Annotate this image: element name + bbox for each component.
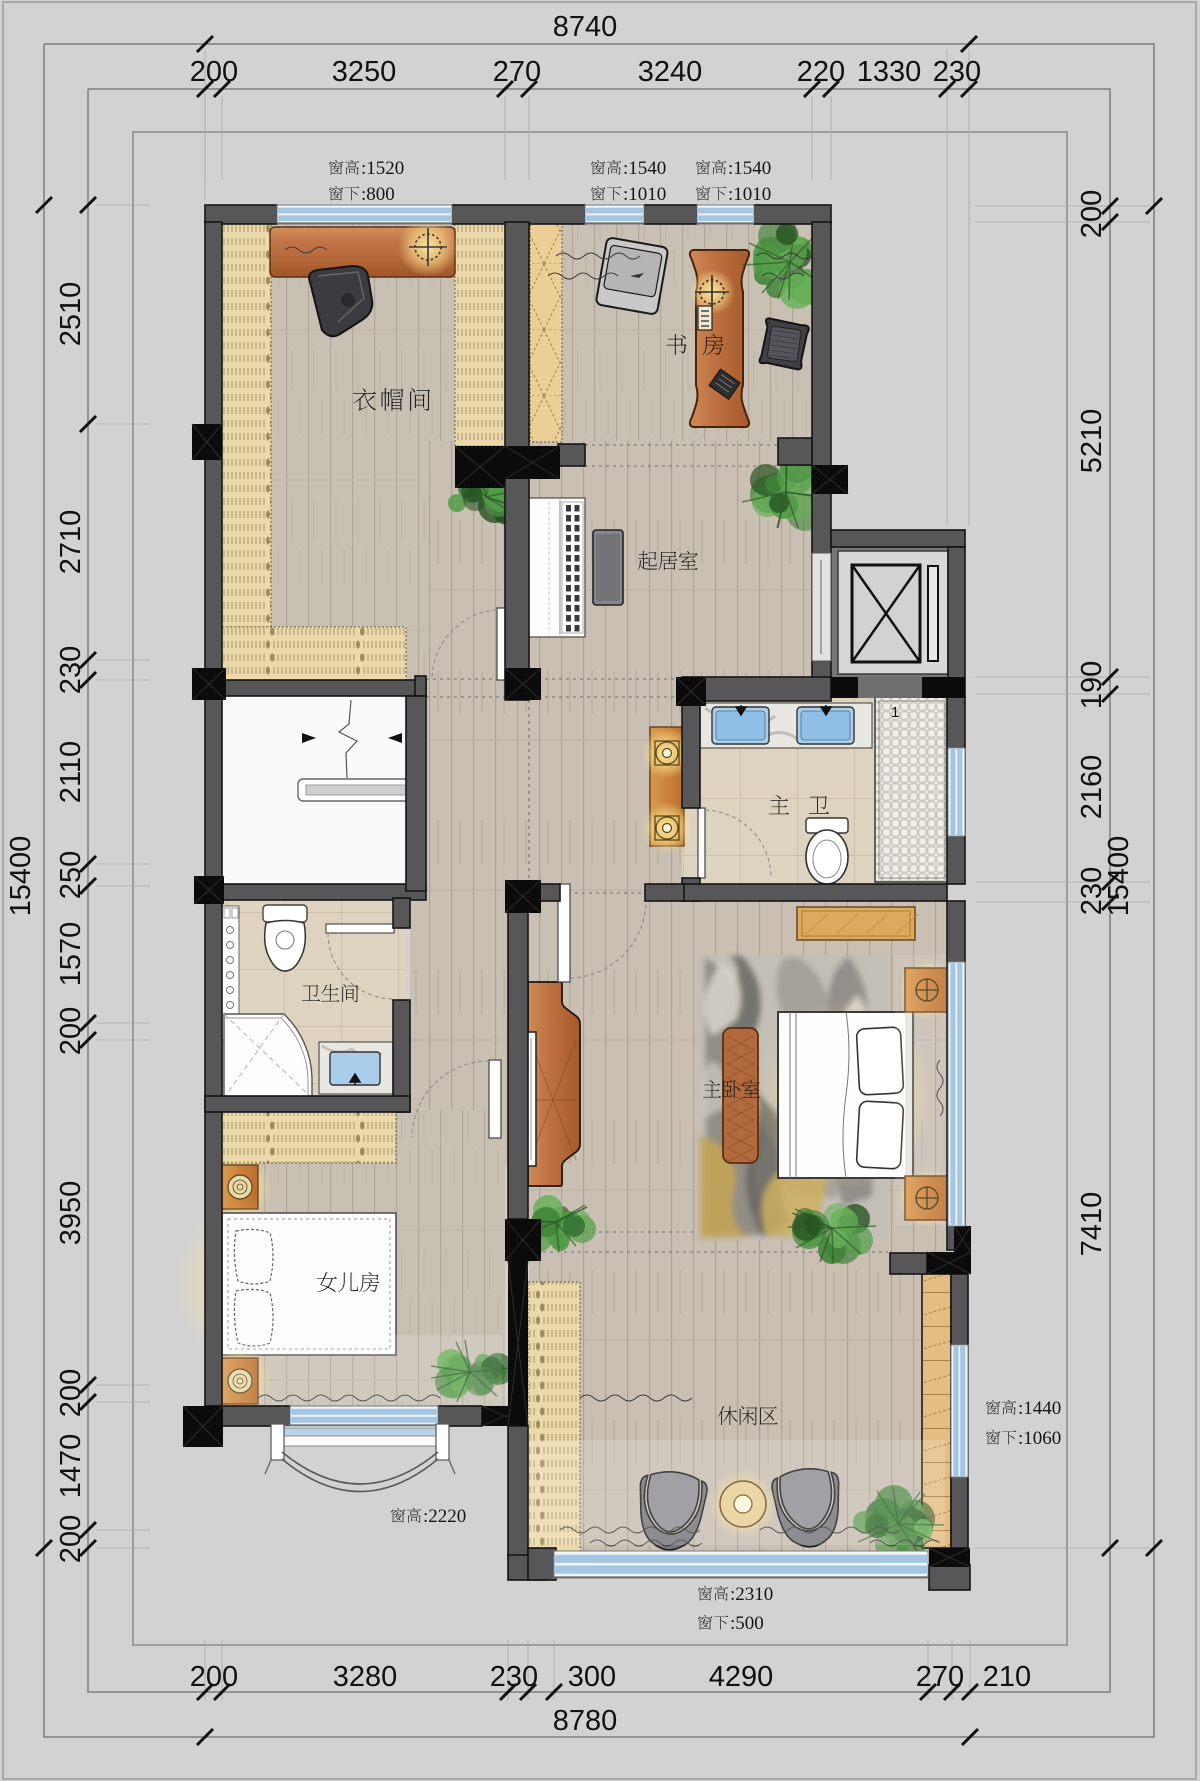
svg-text:4290: 4290 <box>709 1661 774 1693</box>
svg-text:15400: 15400 <box>5 836 37 917</box>
svg-text:250: 250 <box>55 851 87 899</box>
svg-text:200: 200 <box>1076 190 1108 238</box>
svg-text:200: 200 <box>190 56 238 88</box>
svg-text::500: :500 <box>730 1613 764 1634</box>
svg-text:230: 230 <box>1076 867 1108 915</box>
svg-text:2710: 2710 <box>55 510 87 575</box>
svg-text::1010: :1010 <box>728 184 771 205</box>
svg-text:210: 210 <box>983 1661 1031 1693</box>
svg-text:3240: 3240 <box>638 56 703 88</box>
svg-text:200: 200 <box>190 1661 238 1693</box>
svg-text::800: :800 <box>361 184 395 205</box>
svg-text:2510: 2510 <box>55 282 87 347</box>
svg-text::2310: :2310 <box>730 1584 773 1605</box>
svg-text:300: 300 <box>568 1661 616 1693</box>
svg-text:1570: 1570 <box>55 922 87 987</box>
svg-text:1470: 1470 <box>55 1434 87 1499</box>
svg-text:3250: 3250 <box>332 56 397 88</box>
svg-text::2220: :2220 <box>423 1506 466 1527</box>
svg-text:200: 200 <box>55 1007 87 1055</box>
svg-text:190: 190 <box>1076 661 1108 709</box>
svg-text::1440: :1440 <box>1018 1398 1061 1419</box>
svg-text:230: 230 <box>490 1661 538 1693</box>
svg-text:7410: 7410 <box>1076 1192 1108 1257</box>
svg-text:200: 200 <box>55 1369 87 1417</box>
svg-text::1060: :1060 <box>1018 1428 1061 1449</box>
svg-text::1010: :1010 <box>623 184 666 205</box>
svg-text:1330: 1330 <box>857 56 922 88</box>
svg-text:2160: 2160 <box>1076 755 1108 820</box>
svg-text:1: 1 <box>891 704 899 721</box>
svg-text:230: 230 <box>55 646 87 694</box>
svg-text::1540: :1540 <box>623 158 666 179</box>
svg-text:8780: 8780 <box>553 1705 618 1737</box>
svg-text:5210: 5210 <box>1076 409 1108 474</box>
svg-text::1540: :1540 <box>728 158 771 179</box>
svg-text::1520: :1520 <box>361 158 404 179</box>
svg-text:230: 230 <box>933 56 981 88</box>
svg-text:3950: 3950 <box>55 1181 87 1246</box>
svg-text:200: 200 <box>55 1515 87 1563</box>
svg-text:220: 220 <box>797 56 845 88</box>
svg-text:8740: 8740 <box>553 11 618 43</box>
svg-text:3280: 3280 <box>333 1661 398 1693</box>
svg-text:270: 270 <box>916 1661 964 1693</box>
svg-text:270: 270 <box>493 56 541 88</box>
svg-text:2110: 2110 <box>55 741 87 803</box>
